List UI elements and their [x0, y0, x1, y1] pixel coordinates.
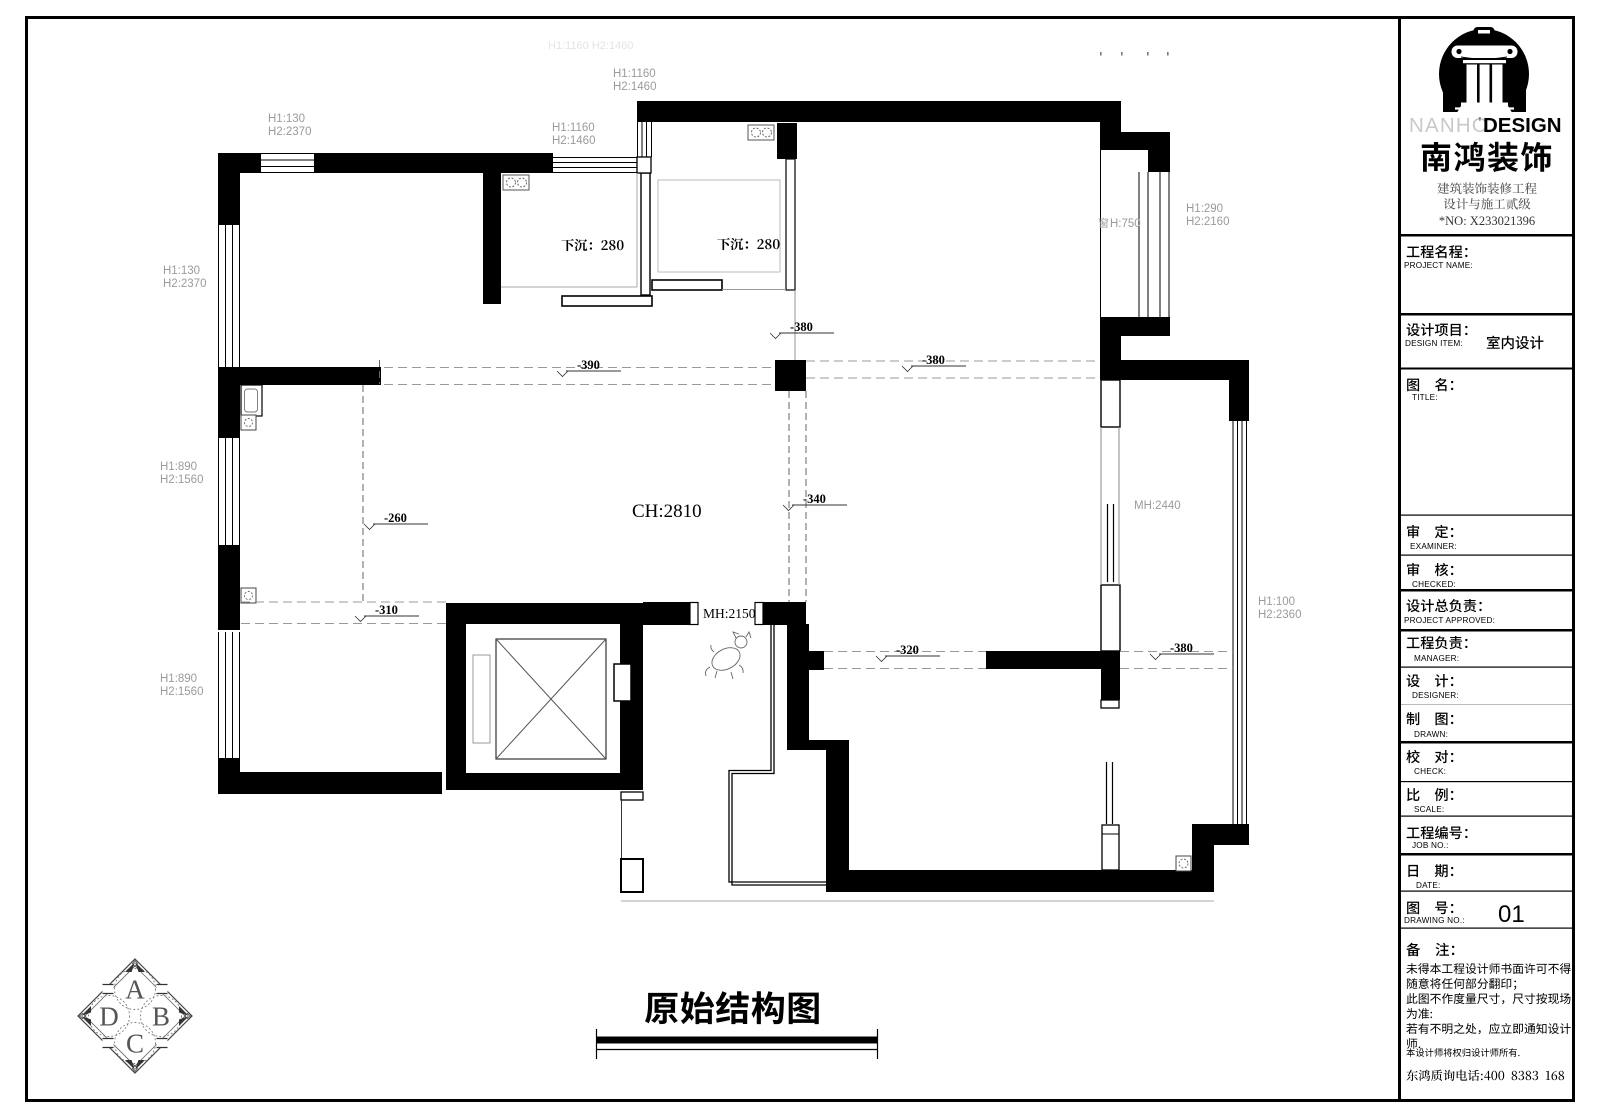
svg-text:EXAMINER:: EXAMINER:: [1410, 542, 1457, 551]
svg-text:-390: -390: [577, 358, 600, 372]
svg-text:-260: -260: [384, 511, 407, 525]
svg-text:DESIGN ITEM:: DESIGN ITEM:: [1405, 339, 1463, 348]
svg-text:-340: -340: [803, 492, 826, 506]
svg-text:H2:1560: H2:1560: [160, 474, 203, 486]
svg-text:-380: -380: [790, 320, 813, 334]
svg-text:H2:1460: H2:1460: [613, 81, 656, 93]
svg-text:MH:2150: MH:2150: [703, 606, 756, 621]
svg-text:DESIGN: DESIGN: [1483, 114, 1562, 137]
svg-text:H1:890: H1:890: [160, 461, 197, 473]
svg-text:CHECKED:: CHECKED:: [1412, 580, 1456, 589]
svg-text:H2:2370: H2:2370: [163, 278, 206, 290]
svg-text:D: D: [99, 1002, 119, 1032]
svg-text:H2:2360: H2:2360: [1258, 609, 1301, 621]
svg-text:-380: -380: [922, 353, 945, 367]
svg-text:SCALE:: SCALE:: [1414, 805, 1444, 814]
svg-text:H2:2160: H2:2160: [1186, 216, 1229, 228]
svg-text:JOB NO.:: JOB NO.:: [1412, 841, 1449, 850]
svg-text:MH:2440: MH:2440: [1134, 500, 1181, 512]
svg-text:CHECK:: CHECK:: [1414, 767, 1446, 776]
svg-text:DRAWN:: DRAWN:: [1414, 730, 1448, 739]
svg-text:H1:290: H1:290: [1186, 203, 1223, 215]
svg-text:DATE:: DATE:: [1416, 881, 1441, 890]
svg-text:-320: -320: [896, 643, 919, 657]
svg-text:B: B: [152, 1002, 170, 1032]
svg-text:H2:1560: H2:1560: [160, 686, 203, 698]
svg-text:H1:1160: H1:1160: [552, 122, 595, 134]
svg-text:CH:2810: CH:2810: [632, 501, 702, 522]
svg-text:H1:130: H1:130: [163, 265, 200, 277]
svg-text:H2:2370: H2:2370: [268, 126, 311, 138]
svg-text:C: C: [126, 1029, 144, 1059]
svg-text:H2:1460: H2:1460: [552, 135, 595, 147]
svg-text:H1:1160 H2:1460: H1:1160 H2:1460: [548, 40, 633, 52]
svg-text:H1:890: H1:890: [160, 673, 197, 685]
svg-text:DRAWING NO.:: DRAWING NO.:: [1404, 916, 1465, 925]
svg-text:H1:130: H1:130: [268, 113, 305, 125]
svg-text:-310: -310: [375, 603, 398, 617]
svg-text:PROJECT NAME:: PROJECT NAME:: [1404, 261, 1473, 270]
svg-text:TITLE:: TITLE:: [1412, 393, 1438, 402]
svg-text:H1:1160: H1:1160: [613, 68, 656, 80]
svg-text:H:750: H:750: [1110, 218, 1141, 230]
svg-text:01: 01: [1498, 901, 1525, 928]
svg-text:H1:100: H1:100: [1258, 596, 1295, 608]
svg-text:': ': [1478, 114, 1482, 131]
svg-text:*NO: X233021396: *NO: X233021396: [1439, 214, 1535, 228]
svg-text:A: A: [125, 975, 145, 1005]
svg-text:MANAGER:: MANAGER:: [1414, 654, 1459, 663]
svg-text:PROJECT APPROVED:: PROJECT APPROVED:: [1404, 616, 1495, 625]
svg-text:-380: -380: [1170, 641, 1193, 655]
svg-text:DESIGNER:: DESIGNER:: [1412, 691, 1459, 700]
